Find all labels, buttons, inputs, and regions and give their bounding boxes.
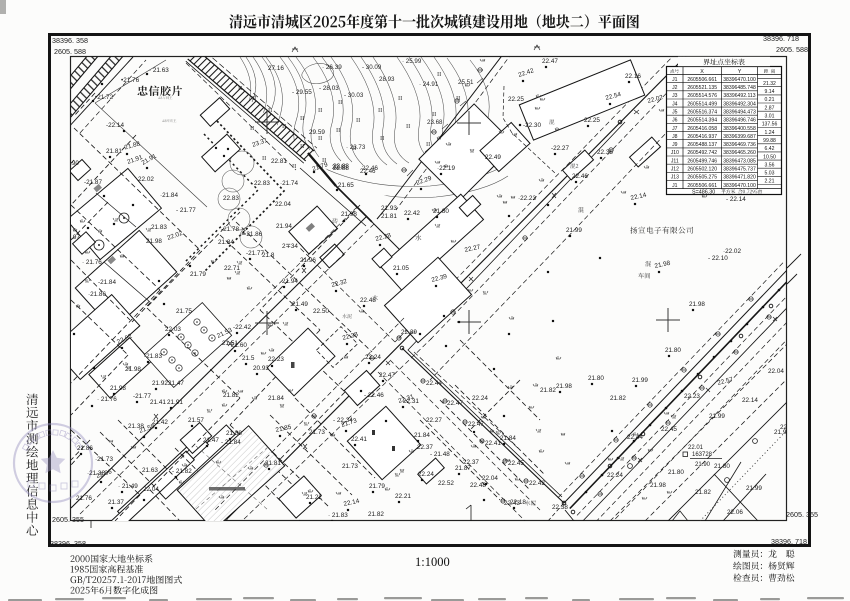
svg-text:-22.42: -22.42 — [233, 324, 251, 331]
svg-text:21.82: 21.82 — [223, 392, 239, 399]
svg-text:22.29: 22.29 — [415, 175, 433, 187]
svg-text:2605. 588: 2605. 588 — [776, 45, 808, 54]
svg-text:•21.76: •21.76 — [121, 77, 140, 84]
svg-text:21.96: 21.96 — [300, 257, 316, 264]
svg-text:2605516.374: 2605516.374 — [687, 110, 717, 116]
svg-text:22.32: 22.32 — [331, 278, 349, 289]
svg-text:5.03: 5.03 — [765, 171, 775, 177]
svg-text:21.49: 21.49 — [292, 301, 308, 308]
svg-text:22.83: 22.83 — [254, 180, 270, 187]
svg-text:22.42: 22.42 — [517, 67, 535, 79]
svg-text:22.46: 22.46 — [572, 173, 588, 180]
svg-text:38396399.687: 38396399.687 — [723, 134, 756, 140]
svg-text:·21.86: ·21.86 — [88, 291, 106, 298]
svg-text:23.31: 23.31 — [251, 137, 269, 149]
svg-text:J7: J7 — [672, 126, 678, 132]
svg-text:21.91: 21.91 — [167, 399, 183, 406]
svg-text:27.16: 27.16 — [268, 65, 284, 72]
svg-text:21.98: 21.98 — [125, 366, 141, 373]
svg-text:22.27: 22.27 — [426, 417, 442, 424]
svg-text:21.83: 21.83 — [151, 224, 167, 231]
svg-text:2605. 355: 2605. 355 — [52, 515, 84, 524]
svg-text:38396473.085: 38396473.085 — [723, 158, 756, 164]
svg-text:21.94: 21.94 — [282, 278, 298, 285]
svg-text:38396494.473: 38396494.473 — [723, 110, 756, 116]
svg-text:99.88: 99.88 — [763, 138, 776, 144]
svg-text:21.80: 21.80 — [714, 463, 730, 470]
svg-text:· 21.65: · 21.65 — [334, 182, 354, 189]
svg-text:·22.02: ·22.02 — [723, 248, 741, 255]
svg-text:21.98: 21.98 — [341, 211, 357, 218]
svg-text:21.82: 21.82 — [695, 489, 711, 496]
svg-text:3.01: 3.01 — [765, 114, 775, 120]
svg-text:21.76: 21.76 — [76, 495, 92, 502]
svg-text:21.98: 21.98 — [110, 385, 126, 392]
svg-text:21.05: 21.05 — [393, 265, 409, 272]
svg-text:21.82: 21.82 — [368, 511, 384, 518]
svg-text:21.92: 21.92 — [152, 380, 168, 387]
svg-text:21.63: 21.63 — [142, 467, 158, 474]
svg-text:-21.84: -21.84 — [98, 279, 116, 286]
svg-text:- 28.03: - 28.03 — [319, 85, 339, 92]
svg-text:· 25.99: · 25.99 — [402, 58, 422, 65]
svg-text:·21.73: ·21.73 — [95, 456, 113, 463]
svg-text:38396470.100: 38396470.100 — [723, 183, 756, 189]
svg-text:38396492.304: 38396492.304 — [723, 101, 756, 107]
svg-text:22.28: 22.28 — [375, 232, 393, 243]
svg-text:163728: 163728 — [692, 452, 713, 458]
svg-text:2605488.137: 2605488.137 — [687, 142, 717, 148]
svg-text:- 22.14: - 22.14 — [726, 196, 746, 203]
svg-text:II: II — [406, 123, 410, 130]
svg-text:II: II — [356, 117, 360, 124]
svg-text:-21.77: -21.77 — [133, 393, 151, 400]
svg-text:J4: J4 — [672, 101, 678, 107]
svg-text:21.47: 21.47 — [168, 380, 184, 387]
svg-text:22.83: 22.83 — [223, 195, 239, 202]
svg-text:- 29.55: - 29.55 — [292, 89, 312, 96]
svg-text:22.04: 22.04 — [482, 475, 498, 482]
svg-text:21.85: 21.85 — [275, 424, 292, 434]
svg-text:22.06: 22.06 — [727, 509, 743, 516]
svg-text:2605. 355: 2605. 355 — [786, 510, 818, 519]
svg-text:· 21.76: · 21.76 — [82, 259, 102, 266]
svg-text:22.24: 22.24 — [607, 472, 623, 479]
svg-text:2∓34: 2∓34 — [282, 243, 298, 250]
svg-text:21.8: 21.8 — [262, 252, 275, 259]
svg-text:21.42: 21.42 — [152, 419, 168, 426]
svg-text:·21.38: ·21.38 — [87, 470, 105, 477]
svg-text:21.90: 21.90 — [63, 160, 79, 167]
svg-text:X: X — [700, 69, 704, 75]
svg-text:22.47: 22.47 — [542, 58, 558, 65]
svg-text:38396. 358: 38396. 358 — [50, 539, 86, 548]
svg-text:21.86: 21.86 — [77, 445, 93, 452]
svg-text:38396. 718: 38396. 718 — [763, 34, 799, 43]
svg-text:-22.27: -22.27 — [551, 145, 569, 152]
svg-text:II: II — [352, 145, 356, 152]
svg-text:21.82: 21.82 — [610, 395, 626, 402]
svg-text:-22.30: -22.30 — [523, 122, 541, 129]
svg-text:21.84: 21.84 — [500, 435, 516, 442]
svg-text:1:1000: 1:1000 — [415, 555, 450, 569]
svg-text:•21.72: •21.72 — [95, 94, 114, 101]
svg-text:0.21: 0.21 — [765, 97, 775, 103]
svg-text:22.23: 22.23 — [268, 356, 284, 363]
svg-text:· 26.39: · 26.39 — [322, 64, 342, 71]
svg-text:38396400.558: 38396400.558 — [723, 126, 756, 132]
svg-text:21.57: 21.57 — [188, 417, 204, 424]
svg-text:22.71: 22.71 — [224, 265, 240, 272]
svg-text:22.47: 22.47 — [468, 421, 484, 428]
svg-text:22.47: 22.47 — [379, 372, 395, 379]
svg-text:J5: J5 — [672, 110, 678, 116]
svg-text:21.88: 21.88 — [226, 430, 242, 437]
svg-text:· 21.49: · 21.49 — [118, 483, 138, 490]
svg-text:9.14: 9.14 — [765, 89, 775, 95]
svg-text:J6: J6 — [672, 118, 678, 124]
svg-text:21.80: 21.80 — [668, 469, 684, 476]
svg-text:21.84: 21.84 — [218, 239, 234, 246]
svg-text:22.48: 22.48 — [360, 297, 376, 304]
svg-text:S=486.30: S=486.30 — [692, 189, 715, 195]
svg-text:21.99: 21.99 — [709, 413, 725, 420]
svg-text:21.38: 21.38 — [128, 423, 144, 430]
svg-text:J2: J2 — [672, 85, 678, 91]
svg-text:J10: J10 — [671, 150, 679, 156]
svg-text:II: II — [378, 107, 382, 114]
svg-text:21.97: 21.97 — [64, 234, 80, 241]
svg-text:21.75: 21.75 — [176, 308, 192, 315]
svg-text:23.68: 23.68 — [427, 119, 443, 126]
svg-text:- 22.46: - 22.46 — [364, 392, 384, 399]
svg-text:J8: J8 — [672, 134, 678, 140]
svg-text:J1: J1 — [672, 77, 678, 83]
svg-text:22.25: 22.25 — [584, 117, 600, 124]
svg-text:2605514.499: 2605514.499 — [687, 101, 717, 107]
svg-text:-21.87: -21.87 — [84, 179, 102, 186]
svg-text:·22.23: ·22.23 — [518, 195, 536, 202]
svg-text:22.44: 22.44 — [426, 380, 442, 387]
svg-text:21.99: 21.99 — [632, 377, 648, 384]
svg-text:22.46: 22.46 — [362, 165, 378, 172]
svg-text:2605506.661: 2605506.661 — [687, 183, 717, 189]
svg-text:38396465.260: 38396465.260 — [723, 150, 756, 156]
svg-text:21.41: 21.41 — [150, 399, 166, 406]
svg-text:10.50: 10.50 — [763, 154, 776, 160]
svg-text:II: II — [336, 127, 340, 134]
svg-text:22.27: 22.27 — [464, 244, 481, 254]
svg-text:38396470.100: 38396470.100 — [723, 77, 756, 83]
svg-text:3.56: 3.56 — [765, 162, 775, 168]
svg-text:22.83: 22.83 — [333, 165, 349, 172]
svg-text:Y: Y — [738, 69, 742, 75]
svg-text:21.98: 21.98 — [654, 260, 671, 270]
svg-text:21.73: 21.73 — [342, 463, 358, 470]
svg-text:22.14: 22.14 — [343, 498, 360, 508]
svg-text:22.24: 22.24 — [418, 471, 434, 478]
svg-text:- 21.77: - 21.77 — [176, 207, 196, 214]
svg-text:22.14: 22.14 — [630, 192, 647, 202]
svg-text:2605502.120: 2605502.120 — [687, 167, 717, 173]
svg-text:21.37: 21.37 — [108, 499, 124, 506]
svg-text:22.01: 22.01 — [688, 445, 704, 451]
svg-text:22.23: 22.23 — [684, 393, 700, 400]
svg-text:J13: J13 — [671, 175, 679, 181]
svg-text:21.93: 21.93 — [381, 205, 397, 212]
svg-text:≛21.86: ≛21.86 — [241, 230, 263, 238]
svg-text:- 21.82: - 21.82 — [172, 468, 192, 475]
svg-text:II: II — [300, 115, 304, 122]
svg-text:22.41: 22.41 — [351, 436, 367, 443]
svg-text:2605416.058: 2605416.058 — [687, 126, 717, 132]
svg-text:38396. 358: 38396. 358 — [52, 36, 88, 45]
svg-text:22.38: 22.38 — [552, 504, 568, 511]
svg-text:-21.78: -21.78 — [221, 226, 239, 233]
svg-text:J9: J9 — [672, 142, 678, 148]
svg-text:38396492.113: 38396492.113 — [723, 93, 755, 99]
svg-text:22.21: 22.21 — [395, 493, 411, 500]
svg-text:2.87: 2.87 — [765, 105, 775, 111]
svg-text:22.02: 22.02 — [647, 94, 665, 105]
svg-text:· 21.83: · 21.83 — [328, 512, 348, 519]
svg-text:II: II — [398, 95, 402, 102]
svg-text:38396475.737: 38396475.737 — [723, 167, 756, 173]
svg-text:- 22.10: - 22.10 — [708, 255, 728, 262]
svg-text:22.45: 22.45 — [661, 426, 677, 433]
svg-text:22.04: 22.04 — [143, 486, 159, 493]
svg-text:22.42: 22.42 — [529, 480, 545, 487]
svg-text:22.02: 22.02 — [166, 230, 184, 242]
svg-text:21.82: 21.82 — [540, 387, 556, 394]
svg-text:38396496.746: 38396496.746 — [723, 118, 756, 124]
svg-text:21.80: 21.80 — [588, 375, 604, 382]
svg-text:21.87: 21.87 — [455, 465, 471, 472]
svg-text:21.22: 21.22 — [306, 494, 322, 501]
svg-text:22.57: 22.57 — [717, 376, 735, 387]
svg-text:21.99: 21.99 — [746, 485, 762, 492]
svg-text:2605521.135: 2605521.135 — [687, 85, 717, 91]
svg-text:·21.84: ·21.84 — [160, 192, 178, 199]
svg-text:- 30.03: - 30.03 — [344, 92, 364, 99]
svg-text:21.32: 21.32 — [763, 81, 776, 87]
svg-text:21.79: 21.79 — [190, 271, 206, 278]
svg-text:22.43: 22.43 — [504, 500, 520, 507]
svg-text:J12: J12 — [671, 167, 679, 173]
svg-text:22.42: 22.42 — [404, 210, 420, 217]
svg-text:2605506.661: 2605506.661 — [687, 77, 717, 83]
svg-text:21.98: 21.98 — [556, 383, 572, 390]
svg-text:22.04: 22.04 — [768, 368, 784, 375]
svg-text:21.99: 21.99 — [566, 227, 582, 234]
svg-text:21.91: 21.91 — [141, 152, 159, 166]
svg-text:22.31: 22.31 — [403, 398, 419, 405]
svg-text:22.03: 22.03 — [165, 326, 181, 333]
svg-text:- 21.48: - 21.48 — [430, 451, 450, 458]
svg-text:J1: J1 — [672, 183, 678, 189]
svg-text:II: II — [380, 135, 384, 142]
svg-text:25.51: 25.51 — [458, 79, 474, 86]
svg-text:21.84: 21.84 — [268, 395, 284, 402]
svg-text:21.98: 21.98 — [650, 482, 666, 489]
svg-text:22.48: 22.48 — [470, 482, 486, 489]
svg-text:38396485.748: 38396485.748 — [723, 85, 756, 91]
svg-text:21.73: 21.73 — [309, 429, 325, 436]
svg-text:· 24.91: · 24.91 — [419, 81, 439, 88]
svg-text:22.10: 22.10 — [780, 424, 796, 431]
svg-text:2605505.275: 2605505.275 — [687, 175, 717, 181]
svg-text:21.81: 21.81 — [381, 213, 397, 220]
svg-text:22.39: 22.39 — [401, 329, 417, 336]
svg-text:II: II — [262, 155, 266, 162]
svg-text:21.80: 21.80 — [665, 347, 681, 354]
svg-text:II: II — [432, 111, 436, 118]
svg-text:22.37: 22.37 — [417, 444, 433, 451]
svg-text:22.02: 22.02 — [138, 176, 154, 183]
svg-text:22.16: 22.16 — [625, 73, 641, 80]
svg-text:21.98: 21.98 — [689, 301, 705, 308]
svg-text:- 30.09: - 30.09 — [362, 64, 382, 71]
svg-text:22.52: 22.52 — [438, 480, 454, 487]
svg-text:II: II — [318, 135, 322, 142]
svg-text:-21.83: -21.83 — [144, 353, 162, 360]
svg-text:21.90: 21.90 — [695, 462, 711, 468]
svg-text:137.56: 137.56 — [762, 122, 778, 128]
svg-text:· 21.63: · 21.63 — [149, 67, 169, 74]
svg-text:- 22.34: - 22.34 — [333, 417, 353, 424]
svg-text:2605499.746: 2605499.746 — [687, 158, 717, 164]
svg-text:22.81: 22.81 — [271, 158, 287, 165]
svg-text:22.24: 22.24 — [668, 38, 684, 45]
svg-text:21.84: 21.84 — [414, 432, 430, 439]
svg-text:2605. 588: 2605. 588 — [54, 47, 86, 56]
svg-text:II: II — [426, 141, 430, 148]
svg-text:28.93: 28.93 — [379, 76, 395, 83]
svg-text:38396469.736: 38396469.736 — [723, 142, 756, 148]
svg-text:38396. 718: 38396. 718 — [771, 537, 807, 546]
svg-text:20.93: 20.93 — [253, 365, 269, 372]
svg-text:2605492.742: 2605492.742 — [687, 150, 717, 156]
svg-text:2605514.576: 2605514.576 — [687, 93, 717, 99]
svg-text:- 21.84: - 21.84 — [221, 439, 241, 446]
svg-text:· 21.76: · 21.76 — [97, 396, 117, 403]
svg-text:II: II — [437, 71, 441, 78]
svg-text:2605514.394: 2605514.394 — [687, 118, 717, 124]
svg-text:22.47: 22.47 — [447, 400, 463, 407]
svg-text:21.98: 21.98 — [146, 238, 162, 245]
svg-text:22.41: 22.41 — [485, 440, 501, 447]
svg-text:21.47: 21.47 — [203, 437, 219, 444]
svg-text:22.49: 22.49 — [485, 154, 501, 161]
svg-text:22.14: 22.14 — [742, 397, 758, 404]
svg-text:II: II — [338, 99, 342, 106]
svg-text:2.21: 2.21 — [765, 179, 775, 185]
svg-text:22.25: 22.25 — [508, 96, 524, 103]
svg-text:J11: J11 — [671, 158, 679, 164]
svg-text:22.24: 22.24 — [472, 395, 488, 402]
svg-text:2605416.937: 2605416.937 — [687, 134, 717, 140]
svg-text:21.79: 21.79 — [369, 483, 385, 490]
svg-text:22.38: 22.38 — [342, 331, 360, 342]
svg-text:38396471.820: 38396471.820 — [723, 175, 756, 181]
svg-text:21.94: 21.94 — [276, 223, 292, 230]
svg-text:22.45: 22.45 — [508, 460, 524, 467]
svg-text:21.5: 21.5 — [242, 355, 255, 362]
svg-text:·21.74: ·21.74 — [280, 180, 298, 187]
svg-text:-21.88: -21.88 — [122, 140, 142, 152]
svg-text:29.59: 29.59 — [309, 129, 325, 136]
svg-text:1.24: 1.24 — [765, 130, 775, 136]
svg-text:21.80: 21.80 — [433, 208, 449, 215]
svg-text:21.81: 21.81 — [106, 148, 122, 155]
svg-text:J3: J3 — [672, 93, 678, 99]
svg-text:6.42: 6.42 — [765, 146, 775, 152]
svg-text:-22.14: -22.14 — [106, 122, 124, 129]
svg-text:II: II — [318, 107, 322, 114]
svg-text:22.50: 22.50 — [313, 308, 329, 315]
svg-text:22.04: 22.04 — [275, 201, 291, 208]
